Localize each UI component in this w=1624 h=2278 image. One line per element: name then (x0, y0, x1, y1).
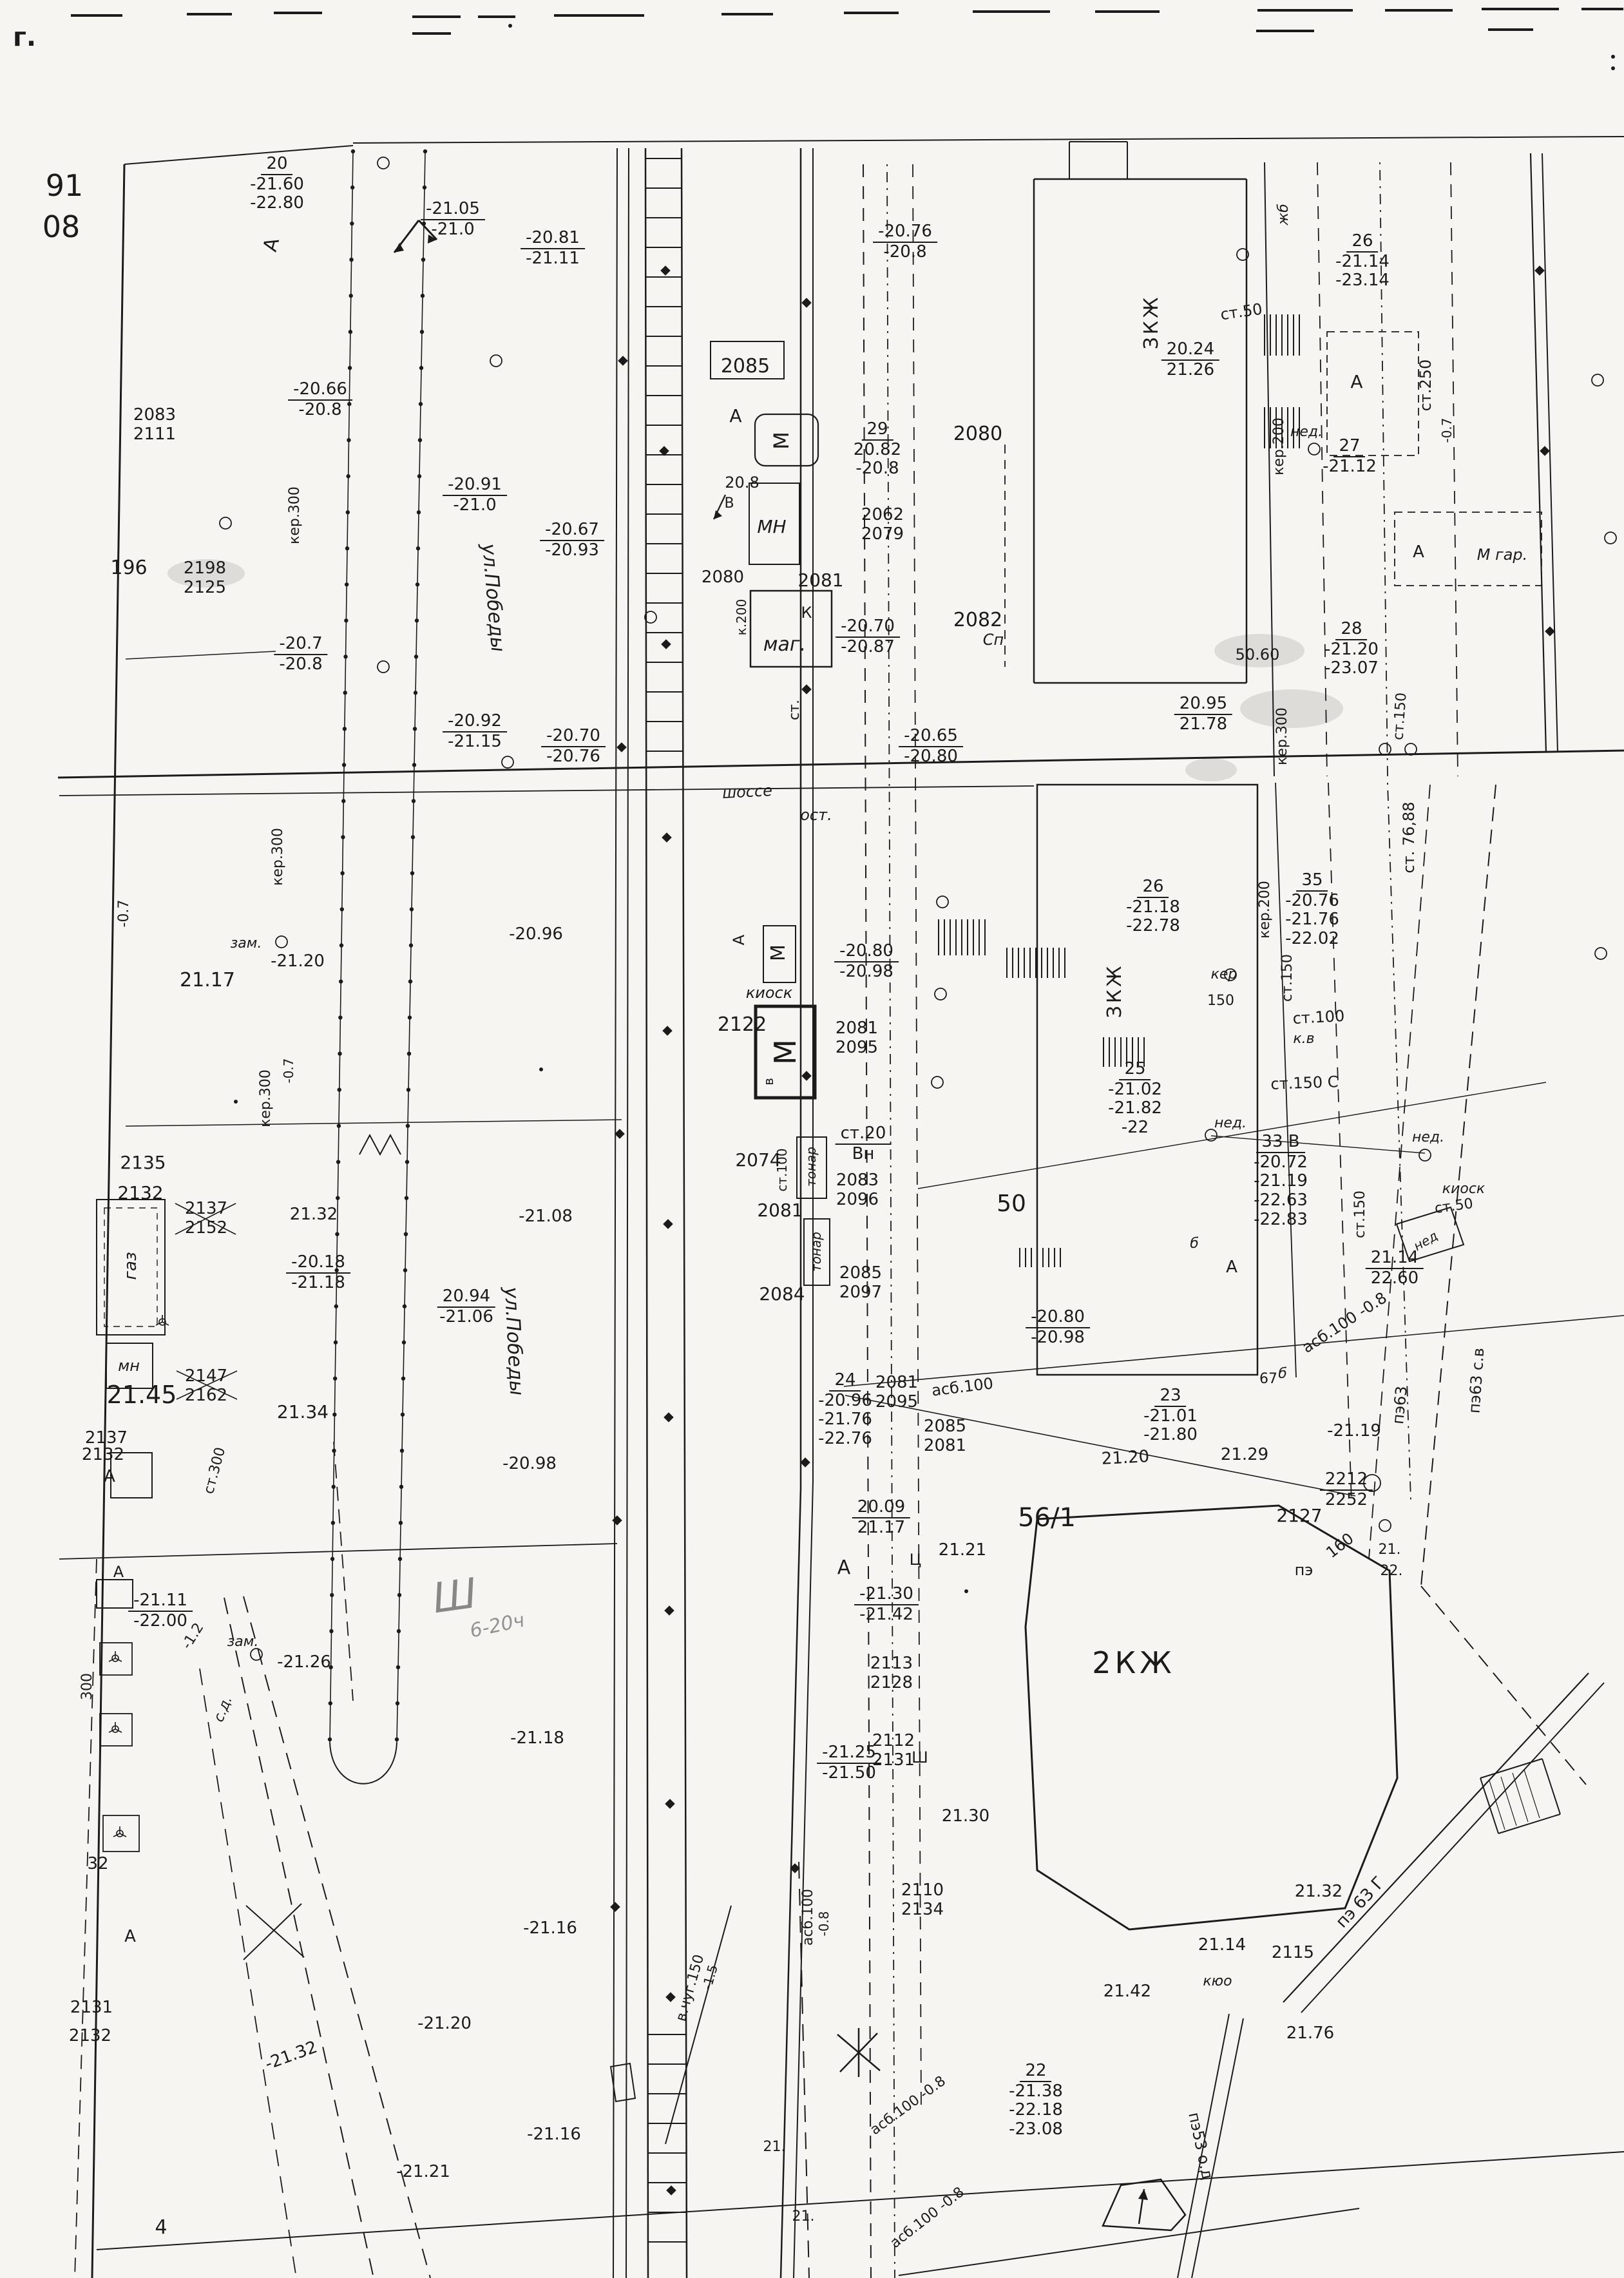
map-label: ст. 76,88 (1401, 801, 1417, 873)
map-frac-value: -22.83 (1254, 1211, 1308, 1230)
map-label: 21.30 (942, 1808, 989, 1824)
map-frac-top: 35 (1296, 871, 1328, 892)
map-frac-value: -21.60 (250, 175, 304, 195)
label-layer: 9108г.А196-0.7кер.300кер.300кер.300-0.7з… (0, 0, 1624, 2278)
map-frac-top: -20.70 (836, 617, 900, 638)
map-label: Сп (983, 632, 1004, 647)
map-frac-value: 2162 (185, 1386, 227, 1406)
map-label: А (113, 1564, 124, 1580)
map-frac-value: -22.76 (818, 1430, 872, 1449)
map-frac-value: -20.8 (883, 243, 926, 262)
map-frac-top: 23 (1154, 1386, 1186, 1407)
map-elevation-group: 20832096 (836, 1171, 879, 1209)
map-label: М (769, 944, 788, 961)
map-label: -21.19 (1327, 1422, 1381, 1439)
map-elevation-group: -20.92-21.15 (443, 712, 507, 751)
map-label: к.в (1293, 1032, 1314, 1046)
map-frac-top: 22 (1020, 2062, 1051, 2082)
map-elevation-group: -20.80-20.98 (1026, 1308, 1090, 1347)
map-label: ст.50 (1434, 1197, 1474, 1216)
map-label: ст.100 (776, 1148, 788, 1191)
map-label: М (771, 432, 792, 450)
map-frac-value: -20.87 (841, 638, 895, 657)
map-label: -20.96 (509, 926, 563, 943)
map-label: газ (122, 1252, 139, 1279)
map-frac-value: -20.93 (545, 541, 599, 560)
map-elevation-group: -20.76-20.8 (873, 222, 937, 262)
map-label: Ц (910, 1552, 922, 1567)
map-frac-top: 24 (829, 1371, 861, 1392)
map-label: кер.300 (288, 486, 302, 544)
map-label: в (762, 1078, 775, 1086)
map-frac-value: 2079 (861, 525, 904, 544)
map-frac-value: -21.15 (448, 732, 502, 752)
map-frac-value: -20.76 (546, 747, 600, 767)
map-frac-top: -20.81 (521, 229, 585, 249)
map-frac-value: 22.60 (1371, 1269, 1419, 1288)
map-frac-value: -22.18 (1009, 2101, 1063, 2120)
map-label: 2082 (953, 611, 1002, 630)
map-label: шоссе (722, 783, 773, 801)
map-label: -0.7 (282, 1058, 295, 1083)
map-label: ст.100 (1292, 1008, 1345, 1026)
map-frac-value: -21.20 (1324, 640, 1379, 660)
map-label: -21.20 (271, 953, 325, 970)
map-label: с.д. (212, 1694, 235, 1725)
map-label: ст.150 (1391, 692, 1409, 740)
map-label: 21.17 (180, 971, 235, 990)
map-elevation-group: -20.81-21.11 (521, 229, 585, 268)
map-frac-top: 2085 (839, 1264, 882, 1283)
map-frac-value: -22.00 (133, 1612, 187, 1631)
map-label: нед. (1290, 425, 1323, 439)
map-frac-top: 2085 (924, 1417, 966, 1437)
map-frac-top: 2147 (185, 1367, 227, 1386)
map-label: ст.250 (1418, 359, 1433, 412)
map-label: 32 (87, 1855, 108, 1872)
map-frac-top: 2137 (185, 1200, 227, 1219)
map-label: асб.100 (801, 1889, 816, 1946)
map-label: кер.200 (1272, 417, 1286, 475)
map-elevation-group: -20.70-20.76 (541, 727, 606, 766)
map-elevation-group: 21132128 (870, 1654, 913, 1692)
map-label: кер.300 (259, 1069, 273, 1127)
map-frac-value: -21.0 (453, 496, 496, 515)
map-label: К (801, 605, 812, 620)
map-label: 2127 (1276, 1507, 1322, 1525)
map-frac-value: 21.78 (1180, 715, 1227, 734)
map-label: 21.32 (1295, 1883, 1342, 1900)
map-label: тонар (810, 1232, 823, 1272)
map-label: 91 (46, 171, 84, 200)
map-frac-top: 20.94 (437, 1287, 495, 1308)
map-elevation-group: -20.70-20.87 (836, 617, 900, 656)
map-frac-top: -20.18 (286, 1253, 350, 1274)
map-frac-value: -20.8 (298, 401, 341, 420)
map-frac-value: -20.72 (1254, 1153, 1308, 1172)
map-elevation-group: 35-20.76-21.76-22.02 (1285, 871, 1339, 949)
map-label: асб.100 -0.8 (1299, 1290, 1389, 1355)
map-label: 4 (155, 2218, 167, 2237)
map-label: А (1226, 1259, 1237, 1276)
map-frac-top: -20.67 (540, 521, 604, 541)
map-elevation-group: -20.91-21.0 (443, 475, 507, 515)
map-elevation-group: 20.2421.26 (1161, 340, 1219, 379)
map-elevation-group: 20.94-21.06 (437, 1287, 495, 1326)
map-frac-value: -21.0 (431, 220, 474, 240)
map-label: б (1278, 1367, 1287, 1381)
map-elevation-group: 21372152 (185, 1200, 227, 1238)
map-label: пэ63 с.в (1466, 1347, 1486, 1413)
map-frac-value: -20.8 (279, 655, 322, 675)
map-label: ст.300 (202, 1446, 228, 1495)
map-label: 21.34 (277, 1403, 329, 1421)
map-elevation-group: 20852081 (924, 1417, 966, 1455)
map-frac-value: -21.80 (1143, 1426, 1198, 1445)
map-frac-top: -20.65 (899, 727, 963, 747)
map-frac-value: -21.02 (1108, 1080, 1162, 1100)
map-elevation-group: -21.30-21.42 (854, 1585, 919, 1624)
map-elevation-group: 23-21.01-21.80 (1143, 1386, 1198, 1445)
map-label: -0.8 (817, 1911, 830, 1936)
map-frac-top: -21.05 (421, 200, 485, 220)
map-label: 2137 (85, 1430, 128, 1446)
map-label: А (837, 1558, 851, 1578)
map-frac-value: -21.14 (1335, 253, 1390, 272)
map-label: 196 (110, 559, 147, 578)
map-elevation-group: 20812095 (875, 1373, 918, 1412)
map-label: А (104, 1468, 115, 1485)
map-label: А (261, 236, 283, 254)
map-label: ЗКЖ (1105, 964, 1125, 1019)
map-frac-top: -21.11 (128, 1591, 193, 1612)
map-label: ЗКЖ (1142, 295, 1161, 350)
map-frac-value: -21.18 (1126, 898, 1180, 917)
map-label: ст.150 (1281, 954, 1295, 1002)
map-frac-value: 2097 (839, 1283, 882, 1303)
map-frac-value: 21.26 (1167, 361, 1214, 380)
map-label: асб.100 -0.8 (868, 2074, 949, 2138)
map-label: асб.100 -0.8 (888, 2185, 967, 2251)
map-label: 21. (763, 2140, 786, 2154)
map-elevation-group: 20622079 (861, 506, 904, 544)
map-frac-value: -21.42 (859, 1605, 913, 1625)
map-label: -20.98 (502, 1455, 557, 1472)
map-frac-value: -21.12 (1323, 457, 1377, 477)
map-frac-top: 29 (861, 420, 893, 441)
map-frac-top: 2110 (901, 1881, 944, 1900)
map-frac-top: 2212 (1320, 1470, 1373, 1491)
map-frac-top: -20.7 (274, 635, 327, 655)
map-frac-value: Вн (852, 1145, 875, 1164)
map-label: 08 (43, 212, 81, 242)
map-label: кер.300 (1275, 707, 1290, 765)
map-label: А (1350, 373, 1362, 391)
map-elevation-group: -20.66-20.8 (288, 380, 352, 419)
map-elevation-group: 28-21.20-23.07 (1324, 620, 1379, 678)
map-label: пэ63 (1390, 1385, 1409, 1425)
map-label: 2132 (82, 1446, 124, 1463)
map-frac-value: -20.80 (904, 747, 958, 767)
map-label: 2135 (120, 1154, 166, 1172)
map-label: -0.7 (1440, 417, 1453, 443)
map-frac-value: 2111 (133, 425, 176, 445)
map-frac-top: 20.24 (1161, 340, 1219, 361)
map-elevation-group: 26-21.18-22.78 (1126, 877, 1180, 936)
map-frac-value: 20.82 (854, 441, 901, 460)
map-elevation-group: -20.18-21.18 (286, 1253, 350, 1292)
map-frac-value: 2081 (924, 1437, 966, 1456)
map-label: -21.16 (523, 1920, 577, 1937)
map-elevation-group: -21.25-21.50 (817, 1743, 881, 1783)
map-frac-top: ст.20 (836, 1124, 892, 1145)
map-frac-top: 28 (1335, 620, 1367, 640)
map-frac-top: -20.70 (541, 727, 606, 747)
map-label: киоск (746, 985, 792, 1000)
map-label: зам. (231, 937, 262, 951)
map-frac-value: 2096 (836, 1191, 879, 1210)
map-frac-top: -20.92 (443, 712, 507, 732)
map-frac-top: 2081 (875, 1373, 918, 1393)
map-label: 2132 (117, 1184, 163, 1202)
map-label: кер.300 (271, 828, 285, 886)
map-frac-top: 26 (1137, 877, 1169, 898)
map-frac-value: -23.08 (1009, 2120, 1063, 2139)
map-frac-top: 2062 (861, 506, 904, 525)
map-frac-top: 2083 (133, 406, 176, 425)
map-label: ул.Победы (479, 543, 508, 653)
map-label: пэ (1295, 1562, 1314, 1578)
map-label: -21.20 (417, 2015, 472, 2032)
map-label: 2115 (1272, 1944, 1314, 1961)
map-frac-value: -21.18 (291, 1274, 345, 1293)
map-frac-value: 2128 (870, 1674, 913, 1693)
map-label: -21.16 (527, 2126, 581, 2143)
map-label: ст. (788, 700, 802, 720)
map-frac-value: 2252 (1325, 1491, 1368, 1510)
map-label: 20.8 (725, 475, 759, 490)
map-label: ст.150 С (1270, 1074, 1339, 1092)
map-label: асб.100 (931, 1375, 994, 1399)
map-label: 21.32 (290, 1206, 338, 1223)
map-frac-value: -21.06 (439, 1308, 493, 1327)
map-label: 21.29 (1221, 1446, 1268, 1463)
map-elevation-group: -20.7-20.8 (274, 635, 327, 674)
map-elevation-group: 33 В-20.72-21.19-22.63-22.83 (1254, 1133, 1308, 1229)
map-label: ул.Победы (501, 1287, 526, 1396)
map-label: зам. (227, 1635, 259, 1649)
map-elevation-group: 20852097 (839, 1264, 882, 1302)
map-label: 160 (1324, 1530, 1357, 1560)
map-frac-value: -20.96 (818, 1392, 872, 1411)
map-elevation-group: ст.20Вн (836, 1124, 892, 1163)
map-label: г. (13, 24, 36, 50)
map-elevation-group: -20.67-20.93 (540, 521, 604, 560)
map-elevation-group: 21982125 (184, 559, 226, 597)
map-label: 22. (1380, 1564, 1403, 1578)
map-label: 2081 (798, 571, 843, 589)
map-label: А (729, 407, 741, 425)
map-label: 2081 (757, 1201, 803, 1220)
map-label: 2131 (70, 1999, 113, 2016)
map-label: кер (1211, 968, 1237, 982)
map-frac-value: -21.76 (1285, 910, 1339, 930)
map-frac-value: 2152 (185, 1219, 227, 1238)
map-label: -21.21 (396, 2163, 450, 2180)
map-frac-top: 20.09 (852, 1498, 910, 1518)
map-frac-value: 2125 (184, 579, 226, 598)
map-frac-top: 26 (1346, 232, 1378, 253)
map-frac-top: -20.80 (1026, 1308, 1090, 1328)
map-label: 2080 (702, 569, 744, 586)
map-frac-top: 2198 (184, 559, 226, 579)
map-frac-top: -20.76 (873, 222, 937, 243)
map-label: кюо (1203, 1975, 1232, 1989)
map-frac-value: -22.80 (250, 194, 304, 213)
map-elevation-group: 20.0921.17 (852, 1498, 910, 1537)
map-label: кер.200 (1258, 881, 1272, 939)
map-frac-value: -20.76 (1285, 892, 1339, 911)
map-label: маг. (763, 635, 806, 655)
map-elevation-group: 21472162 (185, 1367, 227, 1405)
map-frac-top: -20.66 (288, 380, 352, 401)
map-frac-value: -21.76 (818, 1410, 872, 1430)
map-elevation-group: 20.9521.78 (1174, 694, 1232, 734)
map-frac-top: 2081 (836, 1019, 878, 1038)
map-frac-value: -22.63 (1254, 1191, 1308, 1211)
map-label: к.200 (735, 599, 748, 636)
map-label: 2084 (759, 1285, 805, 1303)
map-frac-top: 2113 (870, 1654, 913, 1674)
map-label: жб (1277, 204, 1291, 225)
map-label: М (770, 1039, 800, 1065)
map-frac-top: -21.30 (854, 1585, 919, 1605)
map-label: ст.150 (1353, 1191, 1368, 1238)
map-elevation-group: 22122252 (1320, 1470, 1373, 1509)
map-elevation-group: 20-21.60-22.80 (250, 155, 304, 213)
map-elevation-group: -20.65-20.80 (899, 727, 963, 766)
map-label: 2132 (69, 2027, 111, 2044)
map-label: ст.50 (1219, 301, 1263, 323)
map-label: 2КЖ (1092, 1648, 1175, 1678)
map-label: 2122 (718, 1015, 767, 1035)
map-label: 50.60 (1236, 647, 1280, 662)
map-label: 21.21 (939, 1542, 986, 1558)
map-elevation-group: -21.11-22.00 (128, 1591, 193, 1631)
map-elevation-group: 20832111 (133, 406, 176, 444)
map-label: мн (118, 1358, 140, 1373)
map-label: 21.14 (1198, 1937, 1246, 1953)
map-label: 21.20 (1101, 1448, 1150, 1468)
map-frac-top: -20.91 (443, 475, 507, 496)
map-label: 21.76 (1286, 2025, 1334, 2042)
map-label: киоск (1442, 1182, 1485, 1196)
map-label: тонар (805, 1147, 817, 1187)
map-frac-top: -20.80 (834, 942, 899, 962)
map-frac-value: -23.14 (1335, 271, 1390, 291)
map-elevation-group: 20812095 (836, 1019, 878, 1057)
map-label: В (724, 497, 734, 511)
map-label: А (731, 935, 747, 945)
map-elevation-group: 21.1422.60 (1366, 1249, 1424, 1288)
map-frac-value: 2095 (875, 1393, 918, 1412)
map-label: 56/1 (1018, 1505, 1076, 1531)
map-frac-value: -21.19 (1254, 1172, 1308, 1191)
map-frac-value: -22.02 (1285, 930, 1339, 949)
map-label: Ш (430, 1573, 480, 1620)
map-label: 2085 (721, 357, 770, 376)
map-label: 50 (997, 1192, 1026, 1216)
map-frac-value: -20.8 (855, 459, 899, 479)
map-frac-top: 20.95 (1174, 694, 1232, 715)
map-frac-value: -22 (1122, 1118, 1149, 1138)
map-label: 150 (1207, 994, 1234, 1008)
map-frac-top: -21.25 (817, 1743, 881, 1764)
map-label: 21. (792, 2210, 815, 2224)
map-frac-top: 2083 (836, 1171, 879, 1191)
map-frac-value: -20.98 (1031, 1328, 1085, 1348)
map-frac-value: 2134 (901, 1900, 944, 1920)
map-label: нед. (1412, 1131, 1444, 1145)
map-label: нед. (1214, 1116, 1247, 1131)
map-label: -0.7 (117, 900, 131, 928)
map-label: пэ53 о.д (1186, 2111, 1216, 2181)
map-label: МН (757, 518, 786, 536)
map-label: 2080 (953, 425, 1002, 444)
map-elevation-group: 2920.82-20.8 (854, 420, 901, 479)
map-elevation-group: 26-21.14-23.14 (1335, 232, 1390, 291)
map-label: 21.45 (107, 1383, 177, 1407)
map-label: -21.08 (519, 1208, 573, 1225)
map-frac-top: 25 (1119, 1060, 1151, 1080)
map-label: А (124, 1928, 136, 1945)
map-label: б (1190, 1237, 1199, 1251)
map-frac-value: -21.50 (822, 1764, 876, 1783)
map-frac-value: -21.11 (526, 249, 580, 269)
map-elevation-group: 21102134 (901, 1881, 944, 1919)
map-elevation-group: 25-21.02-21.82-22 (1108, 1060, 1162, 1138)
map-label: М гар. (1477, 547, 1528, 562)
map-frac-top: 21.14 (1366, 1249, 1424, 1269)
map-label: -21.32 (263, 2038, 320, 2072)
map-sheet: 9108г.А196-0.7кер.300кер.300кер.300-0.7з… (0, 0, 1624, 2278)
map-label: -21.18 (510, 1730, 564, 1747)
map-frac-top: 27 (1333, 437, 1365, 457)
map-frac-value: 21.17 (857, 1518, 905, 1538)
map-frac-value: -22.78 (1126, 917, 1180, 936)
map-elevation-group: -20.80-20.98 (834, 942, 899, 981)
map-label: 300 (81, 1673, 95, 1700)
map-elevation-group: 27-21.12 (1323, 437, 1377, 476)
map-label: А (1413, 544, 1424, 560)
map-elevation-group: 22-21.38-22.18-23.08 (1009, 2062, 1063, 2139)
map-frac-value: -21.82 (1108, 1099, 1162, 1118)
map-frac-value: -20.98 (839, 962, 893, 982)
map-frac-top: 33 В (1256, 1133, 1304, 1153)
map-frac-value: -23.07 (1324, 659, 1379, 678)
map-label: ост. (800, 807, 832, 823)
map-elevation-group: 24-20.96-21.76-22.76 (818, 1371, 872, 1449)
map-label: 67 (1259, 1372, 1277, 1386)
map-frac-top: 20 (261, 155, 292, 175)
map-frac-value: -21.01 (1143, 1407, 1198, 1426)
map-elevation-group: -21.05-21.0 (421, 200, 485, 239)
map-label: -21.26 (277, 1654, 331, 1670)
map-label: 21. (1379, 1543, 1401, 1557)
map-frac-value: -21.38 (1009, 2082, 1063, 2101)
map-frac-value: 2095 (836, 1038, 878, 1058)
map-label: 21.42 (1103, 1983, 1151, 2000)
